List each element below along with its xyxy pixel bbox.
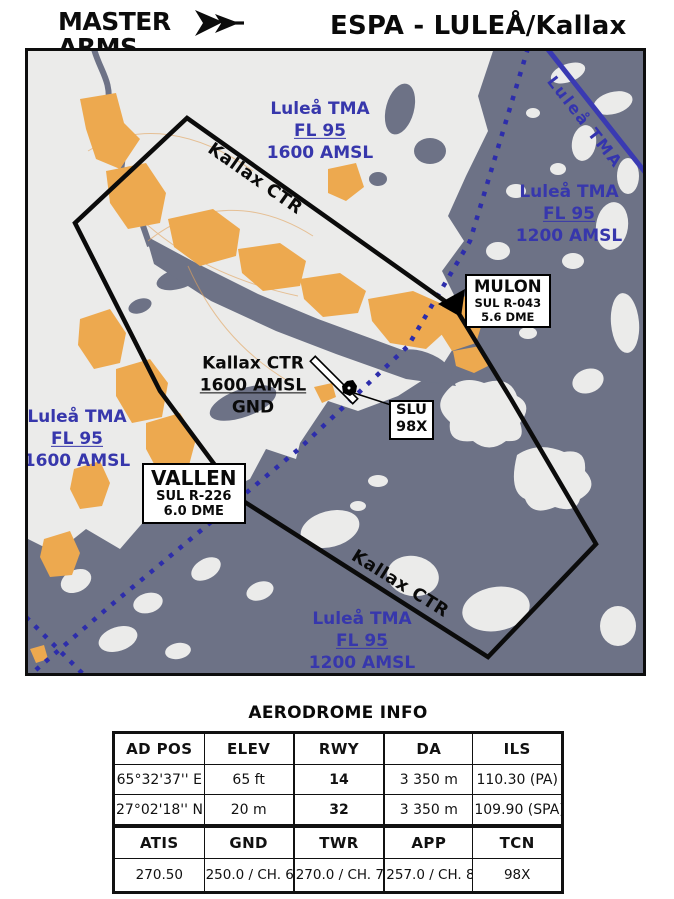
table-row: 27°02'18'' N 20 m 32 3 350 m 109.90 (SPA… bbox=[114, 795, 563, 826]
label-tma-south: Luleå TMA FL 95 1200 AMSL bbox=[309, 608, 415, 674]
col-ils: ILS bbox=[473, 733, 563, 765]
navaid-box-slu: SLU 98X bbox=[389, 400, 434, 440]
waypoint-dme: 6.0 DME bbox=[151, 504, 237, 519]
col-da: DA bbox=[384, 733, 473, 765]
waypoint-dme: 5.6 DME bbox=[474, 311, 542, 325]
da-value: 3 350 m bbox=[384, 795, 473, 826]
table-row: 65°32'37'' E 65 ft 14 3 350 m 110.30 (PA… bbox=[114, 765, 563, 795]
elev-value: 65 ft bbox=[204, 765, 294, 795]
col-elev: ELEV bbox=[204, 733, 294, 765]
waypoint-radial: SUL R-226 bbox=[151, 489, 237, 504]
twr-value: 270.0 / CH. 7 bbox=[294, 859, 385, 893]
app-value: 257.0 / CH. 8 bbox=[384, 859, 473, 893]
waypoint-box-vallen: VALLEN SUL R-226 6.0 DME bbox=[142, 463, 246, 524]
aerodrome-chart-map: Luleå TMA FL 95 1600 AMSL Kallax CTR Lul… bbox=[25, 48, 646, 676]
rwy-value: 14 bbox=[294, 765, 385, 795]
table-row: 270.50 250.0 / CH. 6 270.0 / CH. 7 257.0… bbox=[114, 859, 563, 893]
label-tma-north: Luleå TMA FL 95 1600 AMSL bbox=[267, 98, 373, 164]
col-twr: TWR bbox=[294, 827, 385, 859]
ils-value: 110.30 (PA) bbox=[473, 765, 563, 795]
waypoint-box-mulon: MULON SUL R-043 5.6 DME bbox=[465, 274, 551, 328]
navaid-id: SLU bbox=[396, 402, 427, 419]
col-gnd: GND bbox=[204, 827, 294, 859]
chart-page: MASTER ARMS A SWEDISH COMBAT FLIGHT SIMU… bbox=[0, 0, 674, 899]
waypoint-name: MULON bbox=[474, 278, 542, 297]
aerodrome-info-table: AD POS ELEV RWY DA ILS 65°32'37'' E 65 f… bbox=[112, 731, 564, 827]
rwy-value: 32 bbox=[294, 795, 385, 826]
label-tma-east: Luleå TMA FL 95 1200 AMSL bbox=[516, 181, 622, 247]
aerodrome-info-title: AERODROME INFO bbox=[112, 703, 564, 723]
page-title: ESPA - LULEÅ/Kallax bbox=[330, 11, 590, 41]
jet-silhouette-icon bbox=[193, 4, 245, 48]
atis-value: 270.50 bbox=[114, 859, 205, 893]
col-atis: ATIS bbox=[114, 827, 205, 859]
tcn-value: 98X bbox=[473, 859, 563, 893]
col-ad-pos: AD POS bbox=[114, 733, 205, 765]
col-tcn: TCN bbox=[473, 827, 563, 859]
col-rwy: RWY bbox=[294, 733, 385, 765]
gnd-value: 250.0 / CH. 6 bbox=[204, 859, 294, 893]
ad-pos-value: 27°02'18'' N bbox=[114, 795, 205, 826]
waypoint-name: VALLEN bbox=[151, 467, 237, 489]
waypoint-radial: SUL R-043 bbox=[474, 297, 542, 311]
navaid-channel: 98X bbox=[396, 419, 427, 436]
frequencies-table: ATIS GND TWR APP TCN 270.50 250.0 / CH. … bbox=[112, 825, 564, 894]
elev-value: 20 m bbox=[204, 795, 294, 826]
table-header-row: ATIS GND TWR APP TCN bbox=[114, 827, 563, 859]
ils-value: 109.90 (SPA) bbox=[473, 795, 563, 826]
table-header-row: AD POS ELEV RWY DA ILS bbox=[114, 733, 563, 765]
label-tma-west: Luleå TMA FL 95 1600 AMSL bbox=[25, 406, 130, 472]
label-ctr-center: Kallax CTR 1600 AMSL GND bbox=[200, 353, 306, 418]
col-app: APP bbox=[384, 827, 473, 859]
da-value: 3 350 m bbox=[384, 765, 473, 795]
ad-pos-value: 65°32'37'' E bbox=[114, 765, 205, 795]
